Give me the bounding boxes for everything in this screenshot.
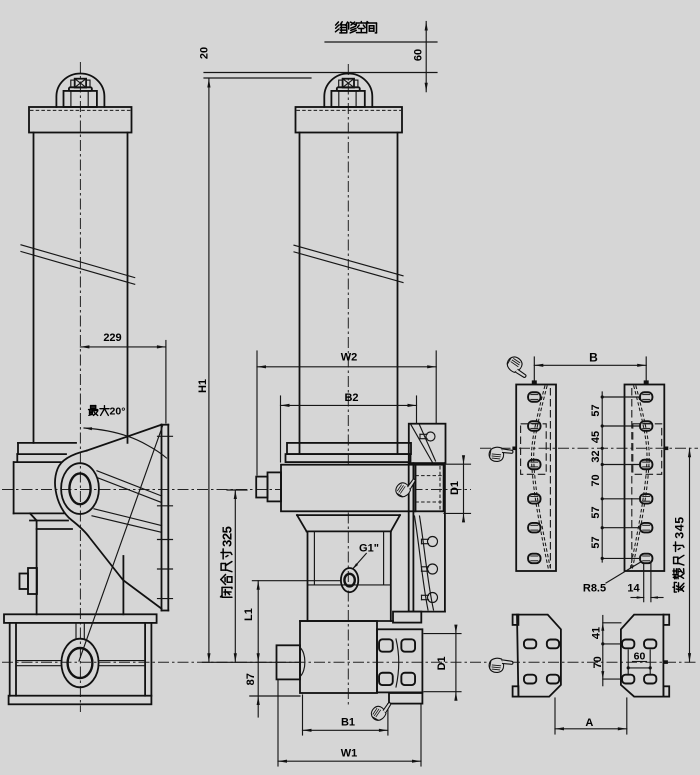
svg-text:57: 57: [590, 536, 602, 548]
svg-text:D1: D1: [449, 481, 461, 495]
svg-text:14: 14: [627, 583, 640, 595]
svg-text:20°: 20°: [110, 405, 126, 417]
svg-text:60: 60: [413, 49, 425, 61]
svg-text:70: 70: [590, 474, 602, 486]
svg-text:32: 32: [590, 450, 602, 462]
svg-text:229: 229: [103, 332, 121, 344]
svg-text:20: 20: [199, 47, 211, 59]
svg-text:60: 60: [634, 651, 646, 663]
svg-text:L1: L1: [243, 608, 255, 621]
svg-text:B1: B1: [341, 717, 355, 729]
svg-text:45: 45: [590, 431, 602, 443]
svg-text:H1: H1: [197, 379, 209, 393]
svg-text:57: 57: [590, 404, 602, 416]
svg-text:G1": G1": [359, 543, 379, 555]
svg-text:D1: D1: [436, 656, 448, 670]
svg-text:4: 4: [673, 524, 687, 531]
svg-text:5: 5: [673, 517, 687, 524]
svg-text:41: 41: [591, 627, 603, 639]
svg-text:70: 70: [592, 656, 604, 668]
svg-text:R8.5: R8.5: [583, 583, 606, 595]
svg-text:87: 87: [245, 673, 257, 685]
svg-text:B: B: [589, 351, 598, 365]
svg-text:5: 5: [220, 526, 235, 533]
svg-text:W1: W1: [341, 748, 358, 760]
svg-text:W2: W2: [341, 352, 358, 364]
svg-text:57: 57: [590, 506, 602, 518]
svg-text:A: A: [585, 717, 593, 729]
svg-text:3: 3: [673, 532, 687, 539]
svg-text:B2: B2: [344, 392, 358, 404]
